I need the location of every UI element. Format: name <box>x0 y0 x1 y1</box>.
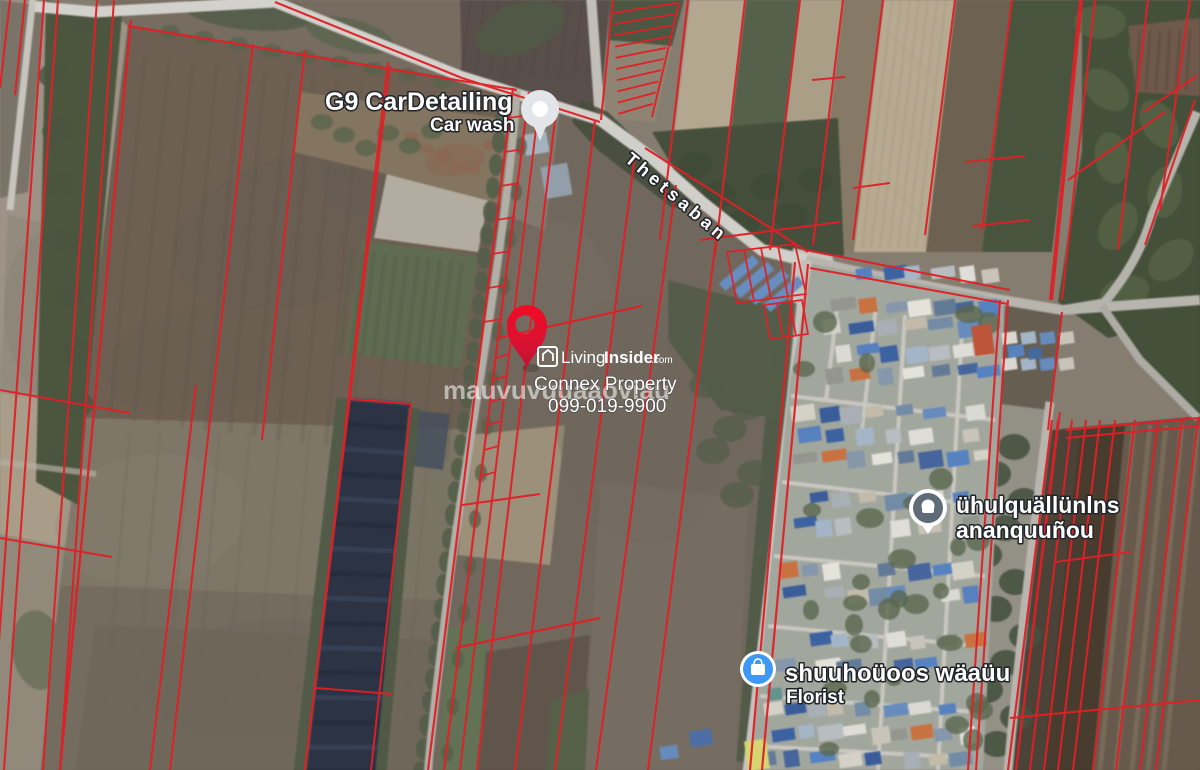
svg-text:G9 CarDetailing: G9 CarDetailing <box>325 88 513 116</box>
svg-text:shuuhoüoos wäaüu: shuuhoüoos wäaüu <box>785 660 1010 687</box>
svg-text:Living: Living <box>561 348 605 367</box>
svg-text:.com: .com <box>651 355 673 366</box>
svg-text:Florist: Florist <box>786 687 845 708</box>
svg-text:Connex Property: Connex Property <box>534 374 677 395</box>
svg-text:Car wash: Car wash <box>430 115 514 136</box>
svg-text:099-019-9900: 099-019-9900 <box>548 396 666 417</box>
svg-text:ühulquällünlns: ühulquällünlns <box>956 492 1120 518</box>
svg-text:ananquuñou: ananquuñou <box>956 517 1094 543</box>
